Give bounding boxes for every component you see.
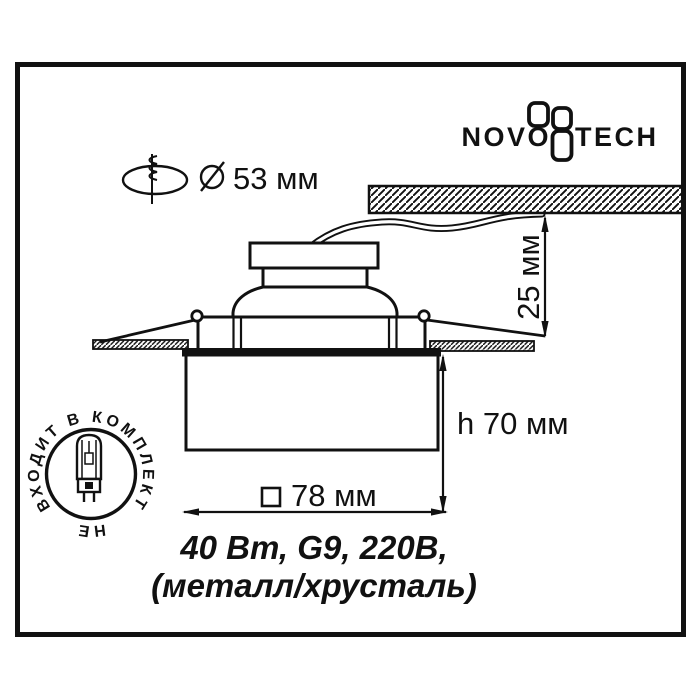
stamp-bottom-text: НЕ [74,520,107,539]
technical-drawing: 25 мм h 70 мм 78 мм 53 мм NOVO [0,0,700,700]
lamp-neck [263,268,367,287]
ceiling-strip-left [93,340,188,349]
cutout-diameter-label: 53 мм [233,161,319,196]
dim-body-height: h 70 мм [439,354,568,513]
dim-body-height-label: h 70 мм [457,406,569,441]
novotech-logo: NOVO TECH [461,103,658,160]
g9-bulb-icon [77,435,101,502]
spec-line-2: (металл/хрусталь) [151,567,477,604]
not-included-stamp: ВХОДИТ В КОМПЛЕКТ НЕ [26,409,156,540]
mounting-ring [198,317,425,351]
trim-flange [182,348,441,357]
logo-text-tech: TECH [575,122,659,152]
crystal-shade [186,352,438,450]
spec-line-1: 40 Вт, G9, 220В, [179,529,447,566]
spec-text: 40 Вт, G9, 220В, (металл/хрусталь) [151,529,477,604]
drill-hole-icon [123,154,187,204]
diameter-symbol-icon [201,162,224,191]
dim-recess-depth: 25 мм [511,215,549,338]
dim-body-width: 78 мм [182,478,448,516]
product-drawing-page: 25 мм h 70 мм 78 мм 53 мм NOVO [0,0,700,700]
square-symbol-icon [262,488,280,506]
driver-box [250,243,378,268]
cutout-note: 53 мм [123,154,319,204]
fixture-cross-section [93,186,683,450]
ceiling-strip-right [430,341,534,351]
dim-recess-depth-label: 25 мм [511,234,546,320]
dim-body-width-label: 78 мм [291,478,377,513]
lamp-housing [233,287,397,318]
spring-clip-left [100,311,202,342]
ceiling-slab [369,186,683,213]
